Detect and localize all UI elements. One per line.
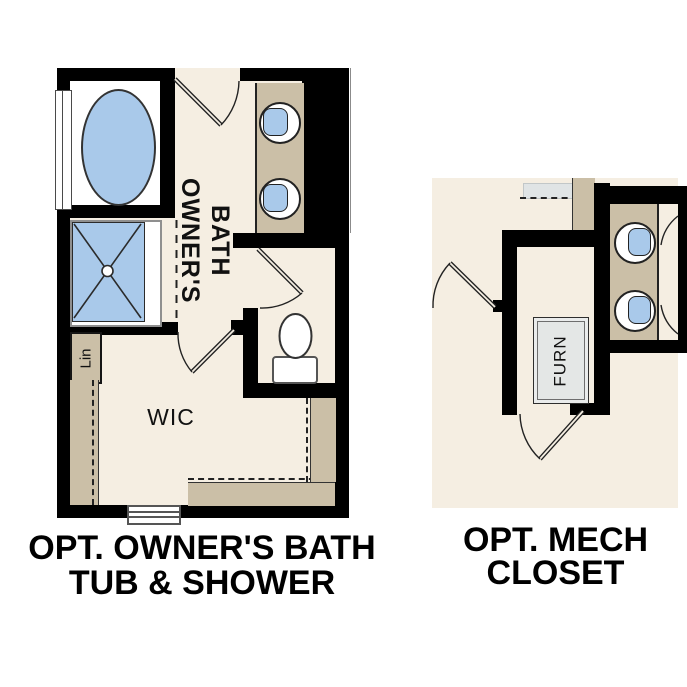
- window-mullion: [62, 91, 64, 209]
- closet-shelf: [70, 380, 99, 505]
- wall-plumbing-chase: [302, 68, 349, 233]
- wall: [243, 383, 349, 398]
- bathtub: [81, 89, 156, 206]
- wall: [502, 247, 517, 415]
- wall: [57, 205, 175, 218]
- wall: [610, 186, 687, 204]
- sink-basin: [628, 228, 651, 256]
- room-label-line: BATH: [205, 170, 235, 312]
- shower-pan: [72, 222, 145, 322]
- window-line: [129, 516, 179, 518]
- closet-shelf: [310, 398, 336, 482]
- wall: [608, 340, 687, 353]
- furnace: FURN: [533, 317, 589, 404]
- furnace-label: FURN: [551, 335, 571, 386]
- sink-basin: [263, 108, 288, 136]
- closet-shelf: [188, 482, 335, 506]
- floorplan-page: { "left_plan": { "caption": ["OPT. OWNER…: [0, 0, 687, 687]
- sink-basin: [628, 296, 651, 324]
- crop-line: [350, 68, 352, 233]
- caption-line: OPT. OWNER'S BATH: [0, 531, 404, 566]
- wall: [233, 233, 349, 248]
- room-label-line: OWNER'S: [175, 170, 205, 312]
- owners-bath-plan: Lin OWNER'S BATH WIC: [57, 68, 349, 518]
- wall: [57, 505, 349, 518]
- linen-closet: Lin: [70, 332, 102, 384]
- window: [127, 505, 181, 525]
- wall: [160, 81, 175, 218]
- wall: [678, 196, 687, 340]
- caption-line: OPT. MECH: [424, 524, 687, 557]
- window: [55, 90, 72, 210]
- closet-rod: [306, 398, 308, 482]
- closet-rod: [520, 197, 578, 199]
- wall: [594, 183, 610, 415]
- caption-line: CLOSET: [424, 557, 687, 590]
- wall-door-stub: [493, 300, 502, 312]
- caption-line: TUB & SHOWER: [0, 566, 404, 601]
- room-label-owners-bath: OWNER'S BATH: [175, 170, 239, 312]
- wall: [57, 68, 175, 81]
- linen-label: Lin: [78, 348, 95, 368]
- cabinet-strip: [572, 178, 595, 230]
- sink-basin: [263, 184, 288, 212]
- mech-closet-plan: FURN: [432, 178, 687, 508]
- furnace-inner: FURN: [537, 321, 585, 400]
- caption-owners-bath: OPT. OWNER'S BATH TUB & SHOWER: [0, 531, 404, 601]
- closet-rod: [92, 380, 94, 505]
- caption-mech-closet: OPT. MECH CLOSET: [424, 524, 687, 590]
- window-line: [129, 511, 179, 513]
- wall: [570, 403, 594, 415]
- room-label-wic: WIC: [141, 404, 201, 431]
